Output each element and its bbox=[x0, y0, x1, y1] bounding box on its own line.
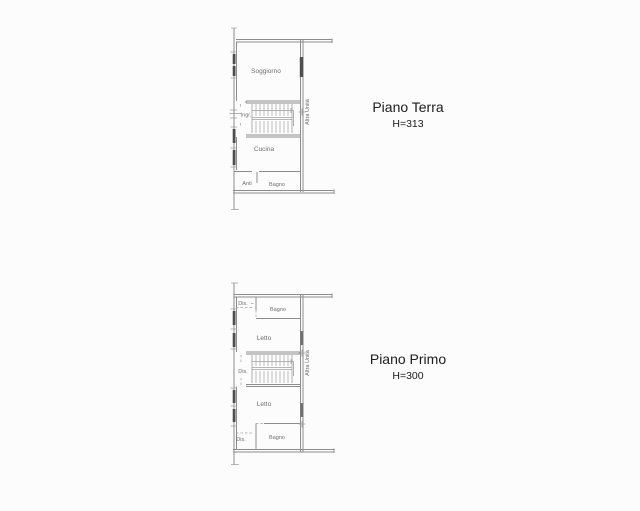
room-label-letto-bottom: Letto bbox=[257, 401, 272, 408]
room-label-bagno-bottom: Bagno bbox=[269, 435, 285, 441]
adjacent-unit-label: Altra Unità bbox=[305, 349, 311, 376]
room-label-anti: Anti bbox=[242, 181, 251, 187]
piano-primo-plan: Dis. Bagno Letto Dis. Letto Bagno Dis. A… bbox=[231, 283, 447, 465]
room-label-soggiorno: Soggiorno bbox=[251, 68, 281, 75]
floor-plan-document: Soggiorno Ingr. Cucina Anti Bagno Altra … bbox=[0, 0, 640, 511]
adjacent-unit-label: Altra Unità bbox=[305, 98, 311, 125]
room-label-dis-mid: Dis. bbox=[238, 369, 248, 375]
junction-cross-icon bbox=[299, 421, 306, 428]
floor-height-piano-primo: H=300 bbox=[392, 370, 423, 382]
staircase bbox=[252, 355, 294, 383]
room-label-dis-top: Dis. bbox=[238, 301, 248, 307]
floor-height-piano-terra: H=313 bbox=[392, 118, 423, 130]
room-label-bagno: Bagno bbox=[269, 182, 285, 188]
interior-walls bbox=[246, 297, 301, 450]
staircase bbox=[252, 104, 294, 133]
piano-terra-plan: Soggiorno Ingr. Cucina Anti Bagno Altra … bbox=[230, 28, 444, 210]
room-label-ingresso: Ingr. bbox=[241, 113, 252, 119]
room-label-dis-bottom: Dis. bbox=[236, 437, 246, 443]
stair-direction-line bbox=[252, 108, 294, 126]
floor-plan-drawing: Soggiorno Ingr. Cucina Anti Bagno Altra … bbox=[0, 0, 640, 511]
room-label-letto-top: Letto bbox=[257, 335, 272, 342]
room-label-cucina: Cucina bbox=[254, 146, 275, 153]
room-label-bagno-top: Bagno bbox=[270, 307, 286, 313]
floor-title-piano-primo: Piano Primo bbox=[370, 351, 446, 367]
floor-title-piano-terra: Piano Terra bbox=[372, 99, 444, 115]
